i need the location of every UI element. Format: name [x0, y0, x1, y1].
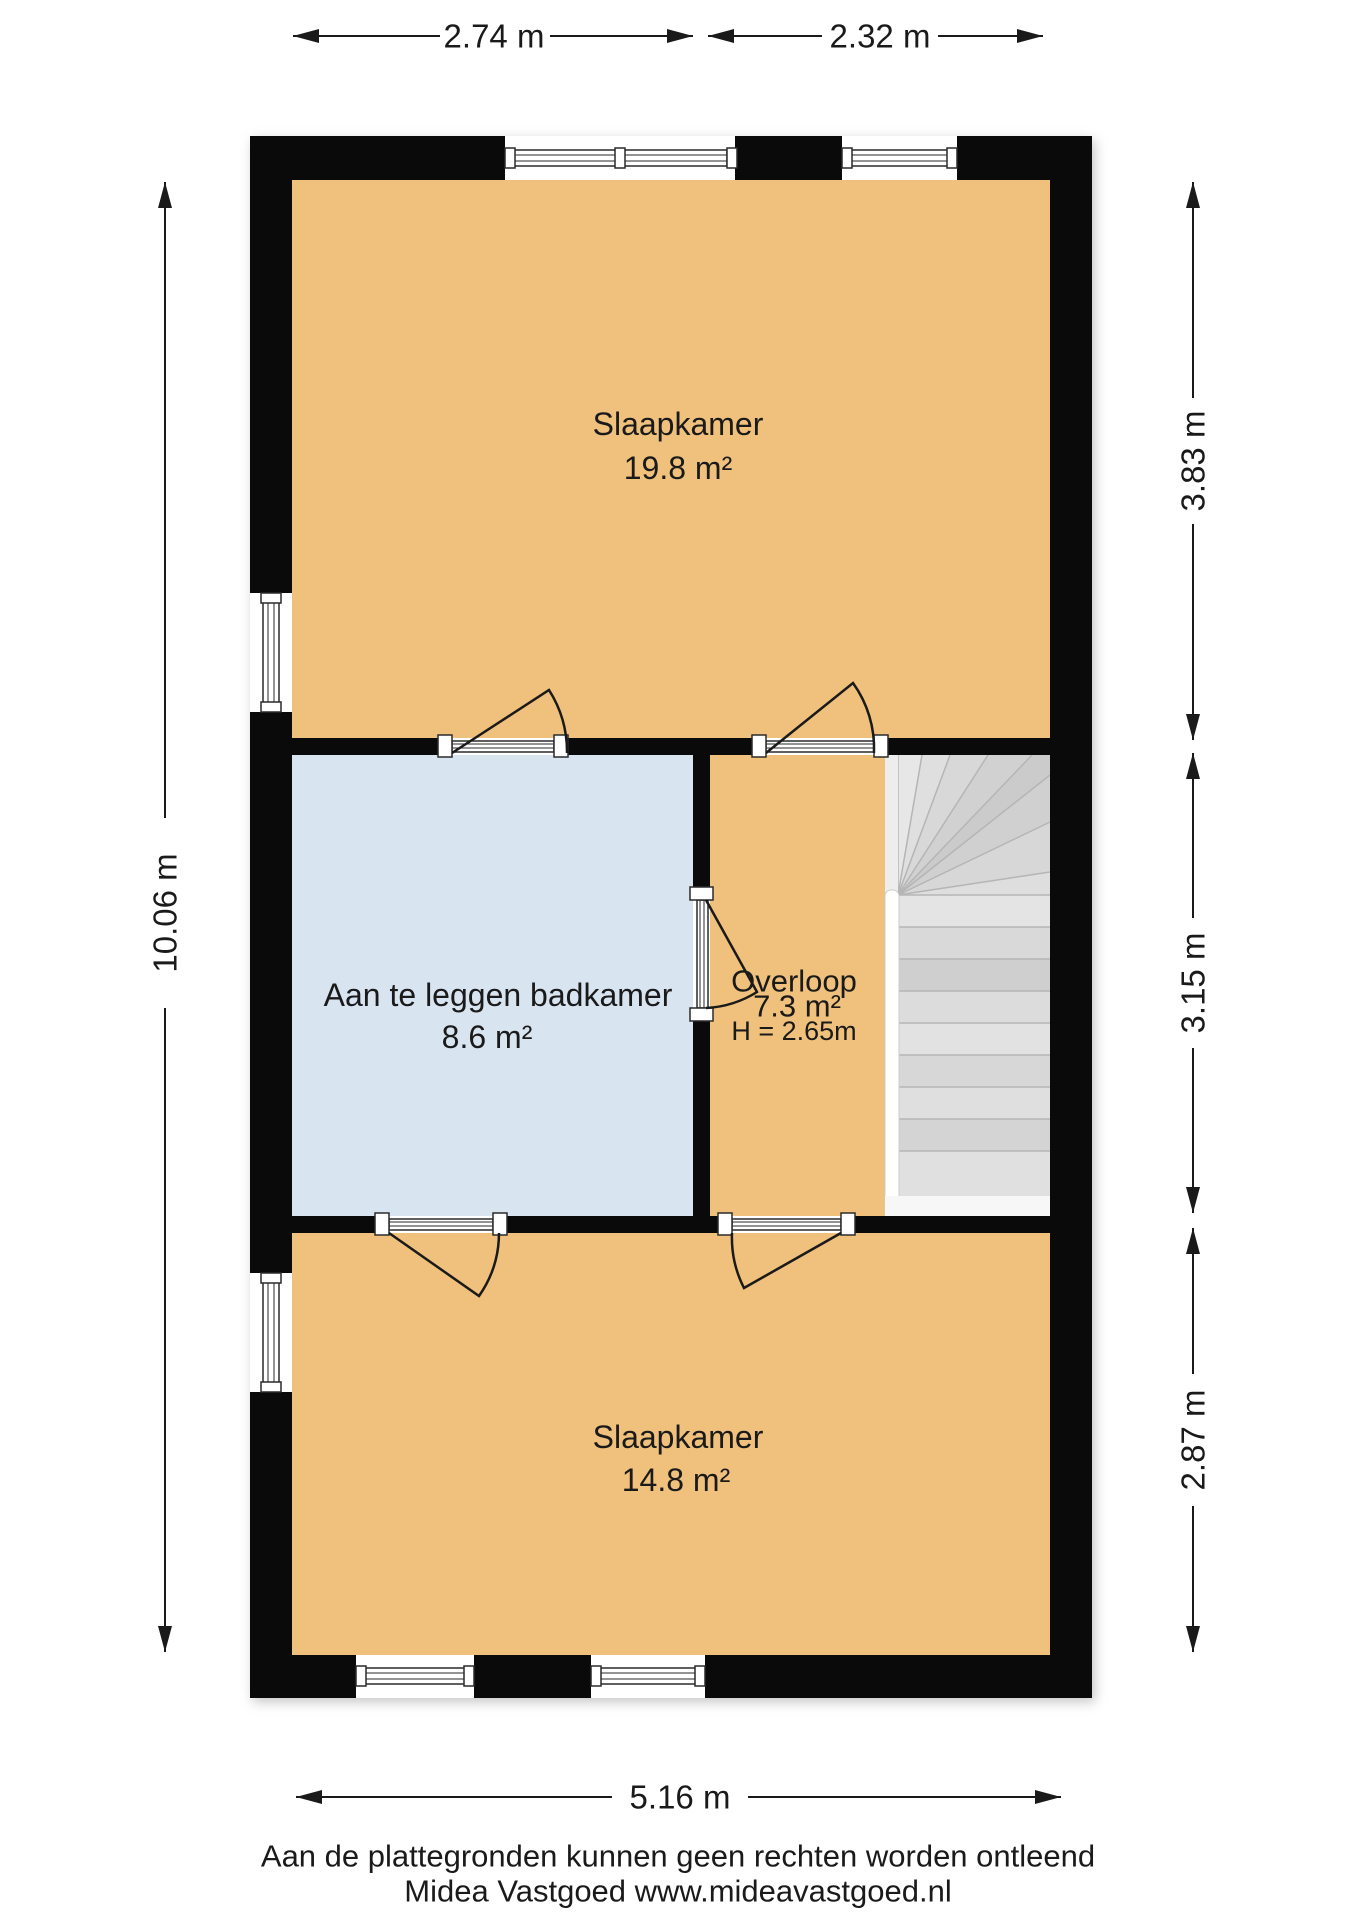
arrowhead-left-icon [293, 29, 319, 43]
room-area-slaapkamer-1: 19.8 m² [624, 450, 733, 486]
wall-left [250, 136, 292, 1698]
stair-tread [898, 959, 1050, 991]
stair-tread [898, 927, 1050, 959]
arrowhead-down-icon [158, 1626, 172, 1652]
arrowhead-down-icon [1186, 1626, 1200, 1652]
room-height-overloop: H = 2.65m [731, 1016, 856, 1046]
dimension-label: 3.83 m [1175, 411, 1212, 512]
footer: Aan de plattegronden kunnen geen rechten… [261, 1839, 1095, 1909]
dimension-label: 5.16 m [630, 1779, 731, 1816]
dimension-bottom: 5.16 m [296, 1779, 1061, 1816]
arrowhead-right-icon [667, 29, 693, 43]
room-area-badkamer: 8.6 m² [442, 1019, 533, 1055]
dimension-top-right: 2.32 m [708, 18, 1043, 55]
arrowhead-left-icon [708, 29, 734, 43]
stair-tread [898, 1151, 1050, 1196]
dimension-right-bottom: 2.87 m [1175, 1228, 1212, 1652]
arrowhead-up-icon [1186, 1228, 1200, 1254]
window-bottom-1 [356, 1655, 474, 1698]
arrowhead-down-icon [1186, 1187, 1200, 1213]
window-top-2 [842, 136, 957, 180]
room-label-slaapkamer-1: Slaapkamer [593, 406, 764, 442]
stair-tread [898, 895, 1050, 927]
stair-tread [898, 1023, 1050, 1055]
building: Slaapkamer 19.8 m² Aan te leggen badkame… [250, 136, 1092, 1698]
dimension-right-middle: 3.15 m [1175, 753, 1212, 1213]
footer-agency: Midea Vastgoed www.mideavastgoed.nl [404, 1874, 951, 1909]
room-area-slaapkamer-2: 14.8 m² [622, 1462, 731, 1498]
stair-tread [898, 991, 1050, 1023]
wall-right [1050, 136, 1092, 1698]
window-left-1 [250, 593, 292, 712]
footer-disclaimer: Aan de plattegronden kunnen geen rechten… [261, 1839, 1095, 1874]
staircase [885, 755, 1050, 1216]
dimension-label: 2.32 m [830, 18, 931, 55]
dimension-label: 3.15 m [1175, 933, 1212, 1034]
stair-tread [898, 1055, 1050, 1087]
stair-edge-strip [885, 755, 898, 900]
arrowhead-left-icon [296, 1790, 322, 1804]
arrowhead-up-icon [158, 182, 172, 208]
stair-tread [898, 1087, 1050, 1119]
floorplan-page: Slaapkamer 19.8 m² Aan te leggen badkame… [0, 0, 1358, 1920]
dimension-left: 10.06 m [147, 182, 184, 1652]
arrowhead-up-icon [1186, 182, 1200, 208]
stair-tread [898, 1119, 1050, 1151]
arrowhead-right-icon [1035, 1790, 1061, 1804]
floorplan-canvas: Slaapkamer 19.8 m² Aan te leggen badkame… [0, 0, 1358, 1920]
dimension-label: 2.74 m [444, 18, 545, 55]
stair-stringer [885, 890, 899, 1216]
stair-landing-edge [885, 1196, 1050, 1216]
window-top-1 [505, 136, 737, 180]
arrowhead-down-icon [1186, 714, 1200, 740]
window-left-2 [250, 1273, 292, 1392]
dimension-top-left: 2.74 m [293, 18, 693, 55]
dimension-right-top: 3.83 m [1175, 182, 1212, 740]
room-label-badkamer: Aan te leggen badkamer [324, 977, 673, 1013]
dimension-label: 10.06 m [147, 853, 184, 972]
window-bottom-2 [591, 1655, 705, 1698]
arrowhead-up-icon [1186, 753, 1200, 779]
arrowhead-right-icon [1017, 29, 1043, 43]
dimension-label: 2.87 m [1175, 1390, 1212, 1491]
room-label-slaapkamer-2: Slaapkamer [593, 1419, 764, 1455]
